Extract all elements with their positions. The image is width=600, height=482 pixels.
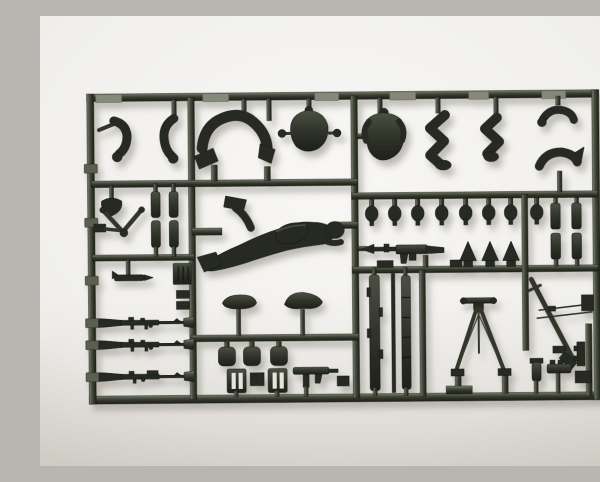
sprue-photo-canvas — [40, 16, 600, 466]
part-canteens — [218, 341, 287, 366]
part-ammo-cones — [459, 241, 519, 267]
sprue-photo — [40, 16, 600, 466]
